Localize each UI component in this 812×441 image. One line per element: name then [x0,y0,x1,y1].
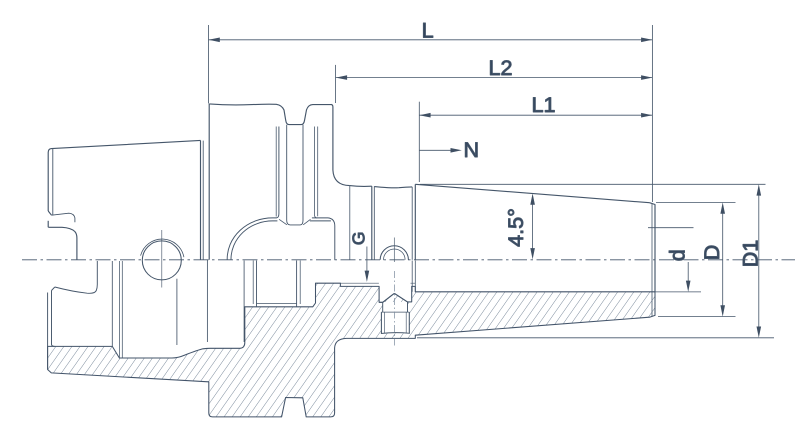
svg-text:N: N [464,137,480,162]
svg-text:D1: D1 [737,240,762,268]
svg-text:L2: L2 [488,55,512,80]
svg-text:L1: L1 [531,92,555,117]
svg-text:G: G [349,231,369,245]
svg-text:D: D [699,245,724,261]
svg-text:d: d [665,249,690,261]
svg-text:L: L [422,17,434,42]
svg-text:4.5°: 4.5° [503,208,528,247]
